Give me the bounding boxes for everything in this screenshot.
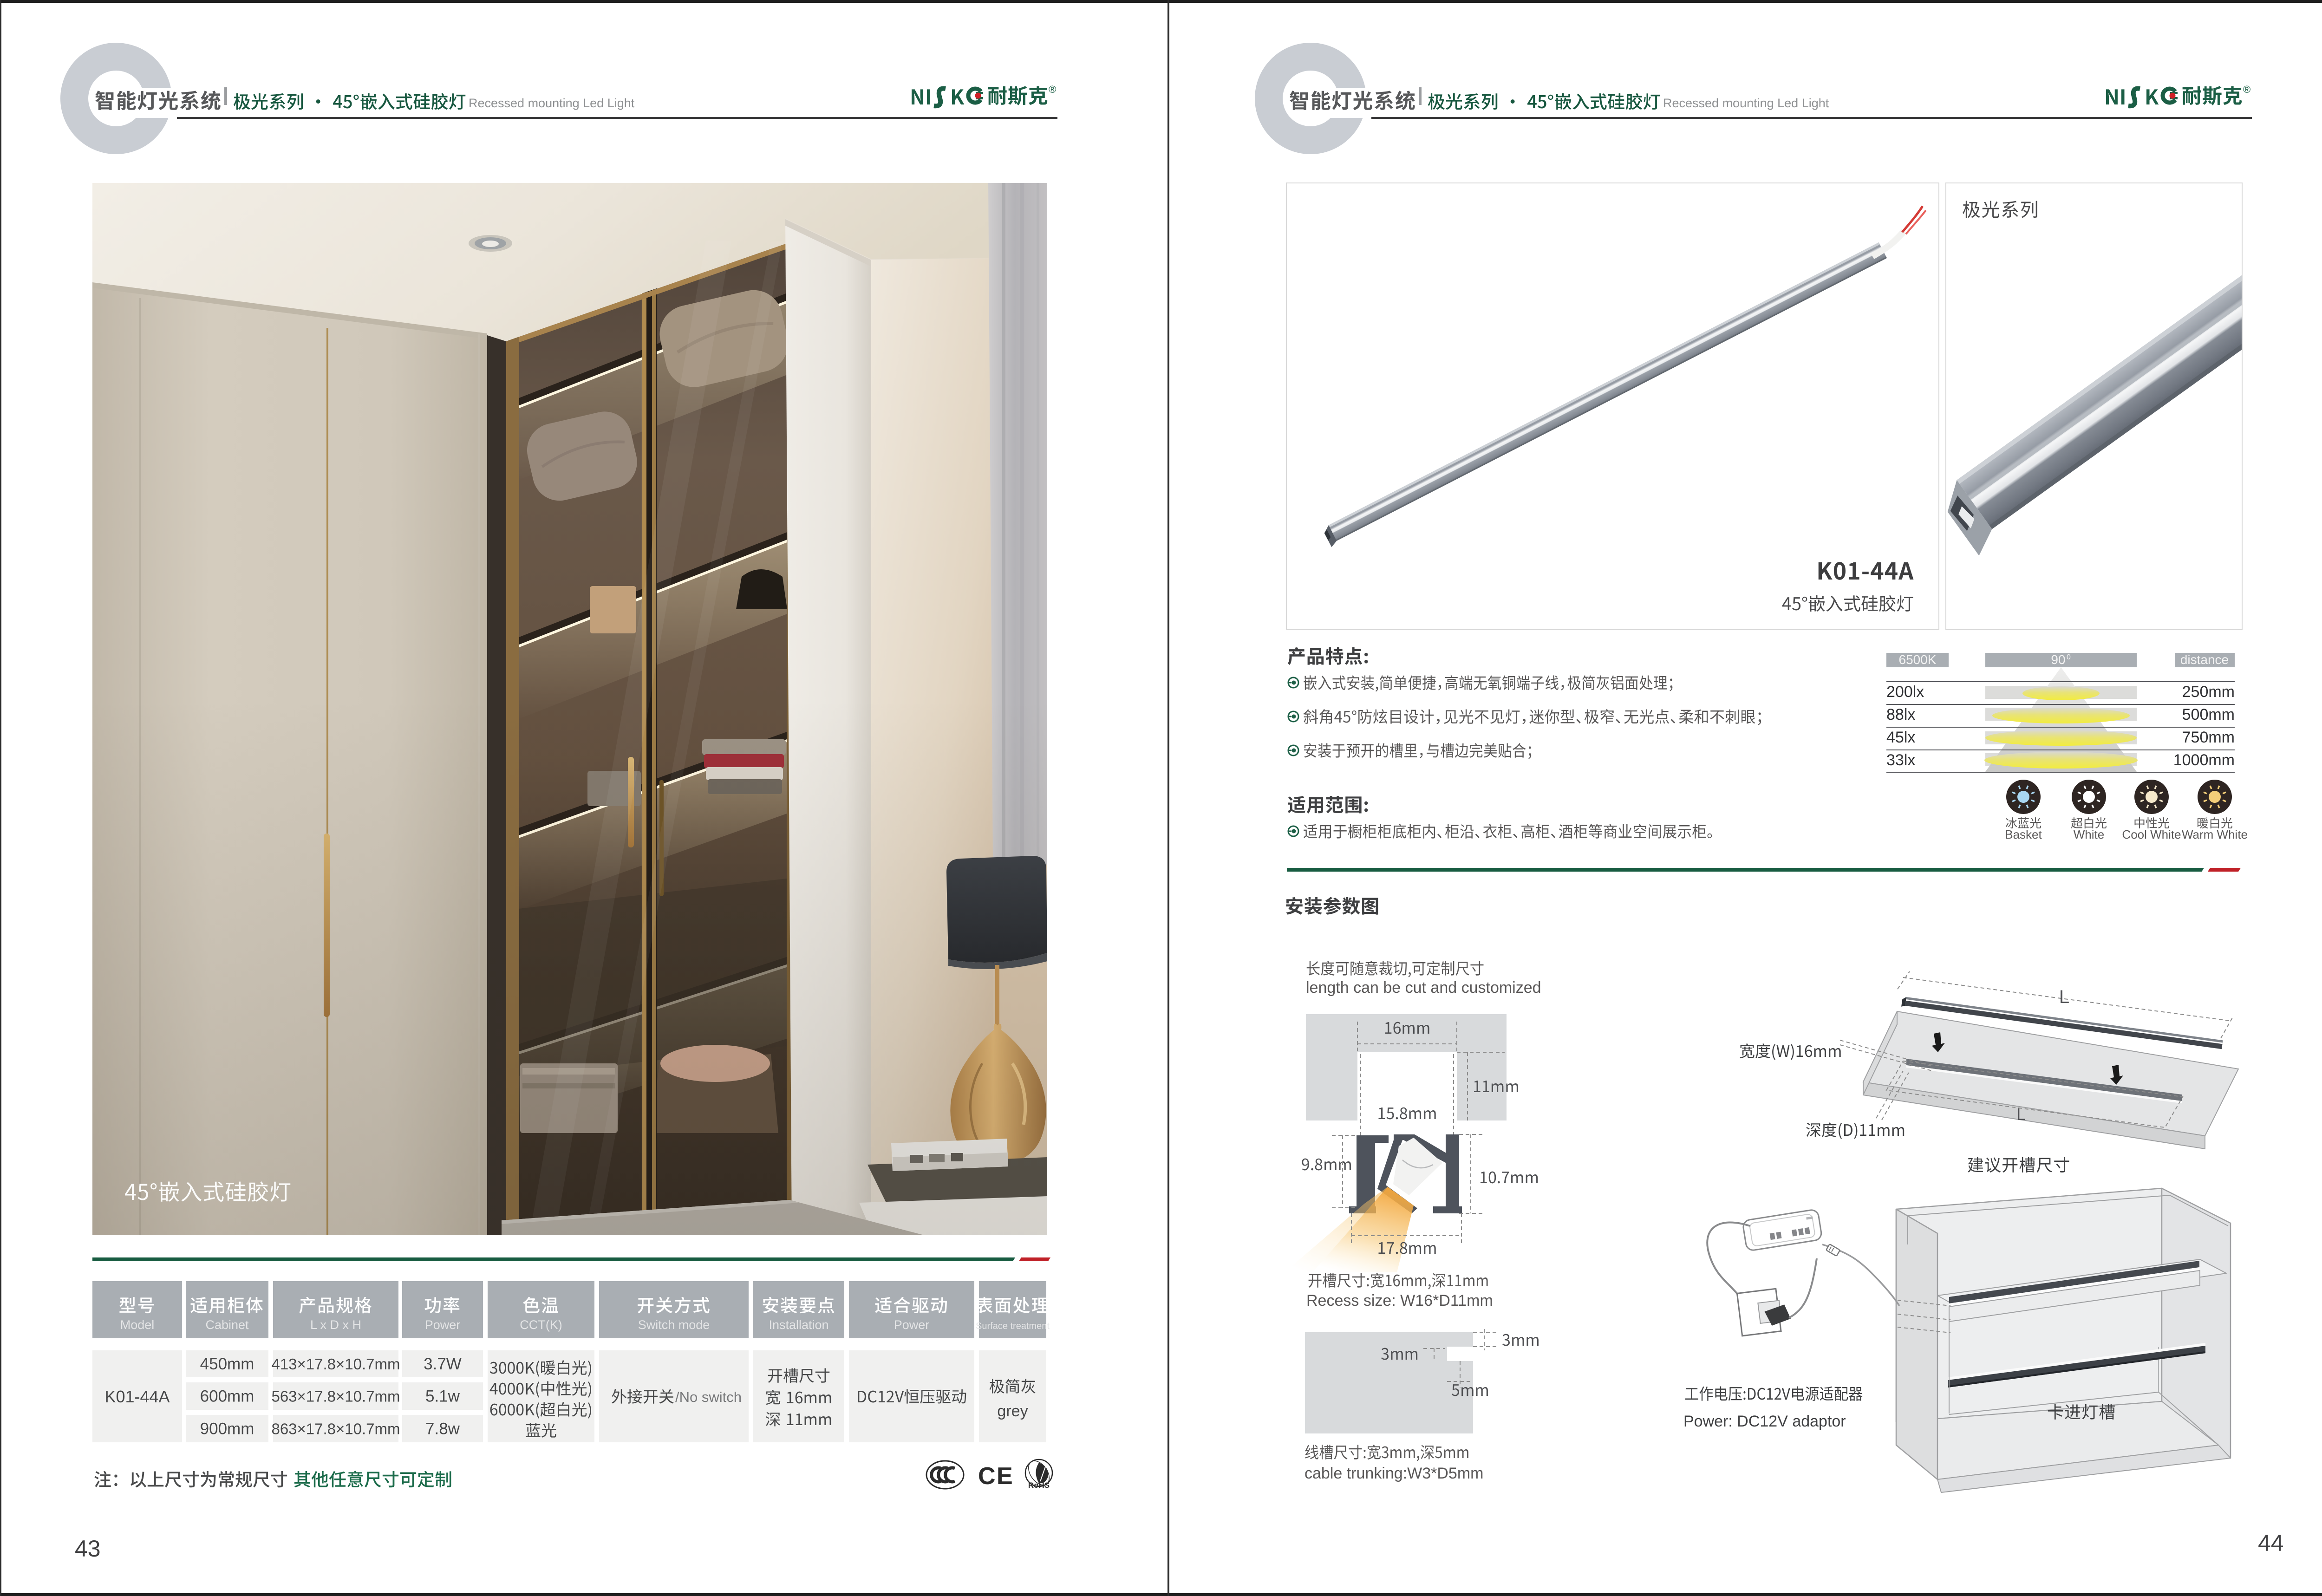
svg-text:Basket: Basket bbox=[2005, 827, 2042, 841]
svg-text:Warm White: Warm White bbox=[2182, 827, 2248, 841]
svg-text:Recessed mounting Led Light: Recessed mounting Led Light bbox=[469, 96, 635, 110]
svg-text:Recess size: W16*D11mm: Recess size: W16*D11mm bbox=[1306, 1292, 1493, 1309]
svg-text:E: E bbox=[997, 1463, 1013, 1490]
svg-text:Switch mode: Switch mode bbox=[638, 1318, 710, 1332]
svg-text:L: L bbox=[2016, 1105, 2026, 1124]
svg-text:Recessed mounting Led Light: Recessed mounting Led Light bbox=[1663, 96, 1829, 110]
svg-text:/No switch: /No switch bbox=[675, 1389, 742, 1405]
svg-text:Power: Power bbox=[894, 1318, 930, 1332]
svg-text:3.7W: 3.7W bbox=[424, 1355, 462, 1373]
svg-text:Power: DC12V adaptor: Power: DC12V adaptor bbox=[1683, 1413, 1846, 1430]
svg-text:200lx: 200lx bbox=[1886, 683, 1924, 701]
svg-text:RoHS: RoHS bbox=[1028, 1481, 1050, 1490]
svg-text:Cool White: Cool White bbox=[2122, 827, 2181, 841]
svg-text:1000mm: 1000mm bbox=[2173, 751, 2235, 769]
svg-text:distance: distance bbox=[2180, 652, 2229, 667]
svg-text:C: C bbox=[978, 1463, 996, 1490]
svg-text:44: 44 bbox=[2258, 1530, 2284, 1556]
svg-text:563×17.8×10.7mm: 563×17.8×10.7mm bbox=[271, 1388, 400, 1405]
svg-text:450mm: 450mm bbox=[200, 1355, 254, 1373]
svg-text:500mm: 500mm bbox=[2182, 706, 2235, 723]
svg-text:®: ® bbox=[2243, 84, 2250, 95]
svg-text:Cabinet: Cabinet bbox=[205, 1318, 249, 1332]
svg-text:®: ® bbox=[1049, 84, 1056, 95]
svg-text:CCT(K): CCT(K) bbox=[520, 1318, 562, 1332]
svg-text:7.8w: 7.8w bbox=[425, 1420, 460, 1438]
svg-text:White: White bbox=[2074, 827, 2104, 841]
svg-text:K01-44A: K01-44A bbox=[104, 1387, 170, 1406]
svg-text:250mm: 250mm bbox=[2182, 683, 2235, 701]
svg-text:L x D x H: L x D x H bbox=[310, 1318, 361, 1332]
svg-text:6500K: 6500K bbox=[1899, 652, 1937, 667]
svg-text:900mm: 900mm bbox=[200, 1420, 254, 1438]
svg-text:413×17.8×10.7mm: 413×17.8×10.7mm bbox=[271, 1355, 400, 1373]
svg-text:43: 43 bbox=[75, 1536, 101, 1562]
svg-text:5.1w: 5.1w bbox=[425, 1388, 460, 1406]
svg-text:Model: Model bbox=[120, 1318, 155, 1332]
svg-text:750mm: 750mm bbox=[2182, 729, 2235, 746]
svg-text:Surface treatment: Surface treatment bbox=[976, 1321, 1050, 1331]
svg-text:grey: grey bbox=[997, 1402, 1028, 1420]
svg-text:33lx: 33lx bbox=[1886, 751, 1915, 769]
svg-text:88lx: 88lx bbox=[1886, 706, 1915, 723]
svg-text:L: L bbox=[2059, 987, 2069, 1007]
svg-text:cable trunking:W3*D5mm: cable trunking:W3*D5mm bbox=[1304, 1465, 1483, 1482]
svg-text:length can be cut and customiz: length can be cut and customized bbox=[1306, 979, 1541, 997]
svg-text:600mm: 600mm bbox=[200, 1388, 254, 1406]
svg-text:0: 0 bbox=[2067, 653, 2071, 661]
svg-text:45lx: 45lx bbox=[1886, 729, 1915, 746]
svg-text:Installation: Installation bbox=[769, 1318, 828, 1332]
svg-text:90: 90 bbox=[2051, 652, 2065, 667]
svg-text:863×17.8×10.7mm: 863×17.8×10.7mm bbox=[271, 1420, 400, 1438]
svg-text:Power: Power bbox=[425, 1318, 461, 1332]
